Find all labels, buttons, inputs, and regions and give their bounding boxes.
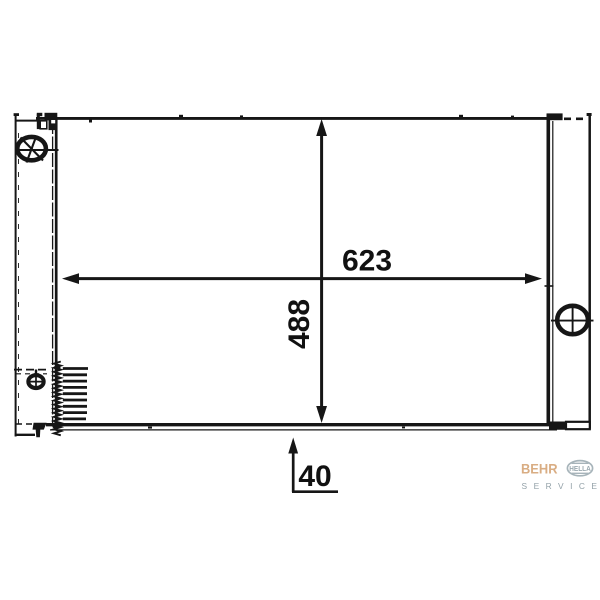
- svg-text:40: 40: [298, 460, 331, 493]
- svg-text:BEHR: BEHR: [521, 461, 558, 477]
- svg-text:HELLA: HELLA: [569, 464, 591, 473]
- svg-text:488: 488: [283, 299, 316, 349]
- svg-text:623: 623: [342, 245, 392, 278]
